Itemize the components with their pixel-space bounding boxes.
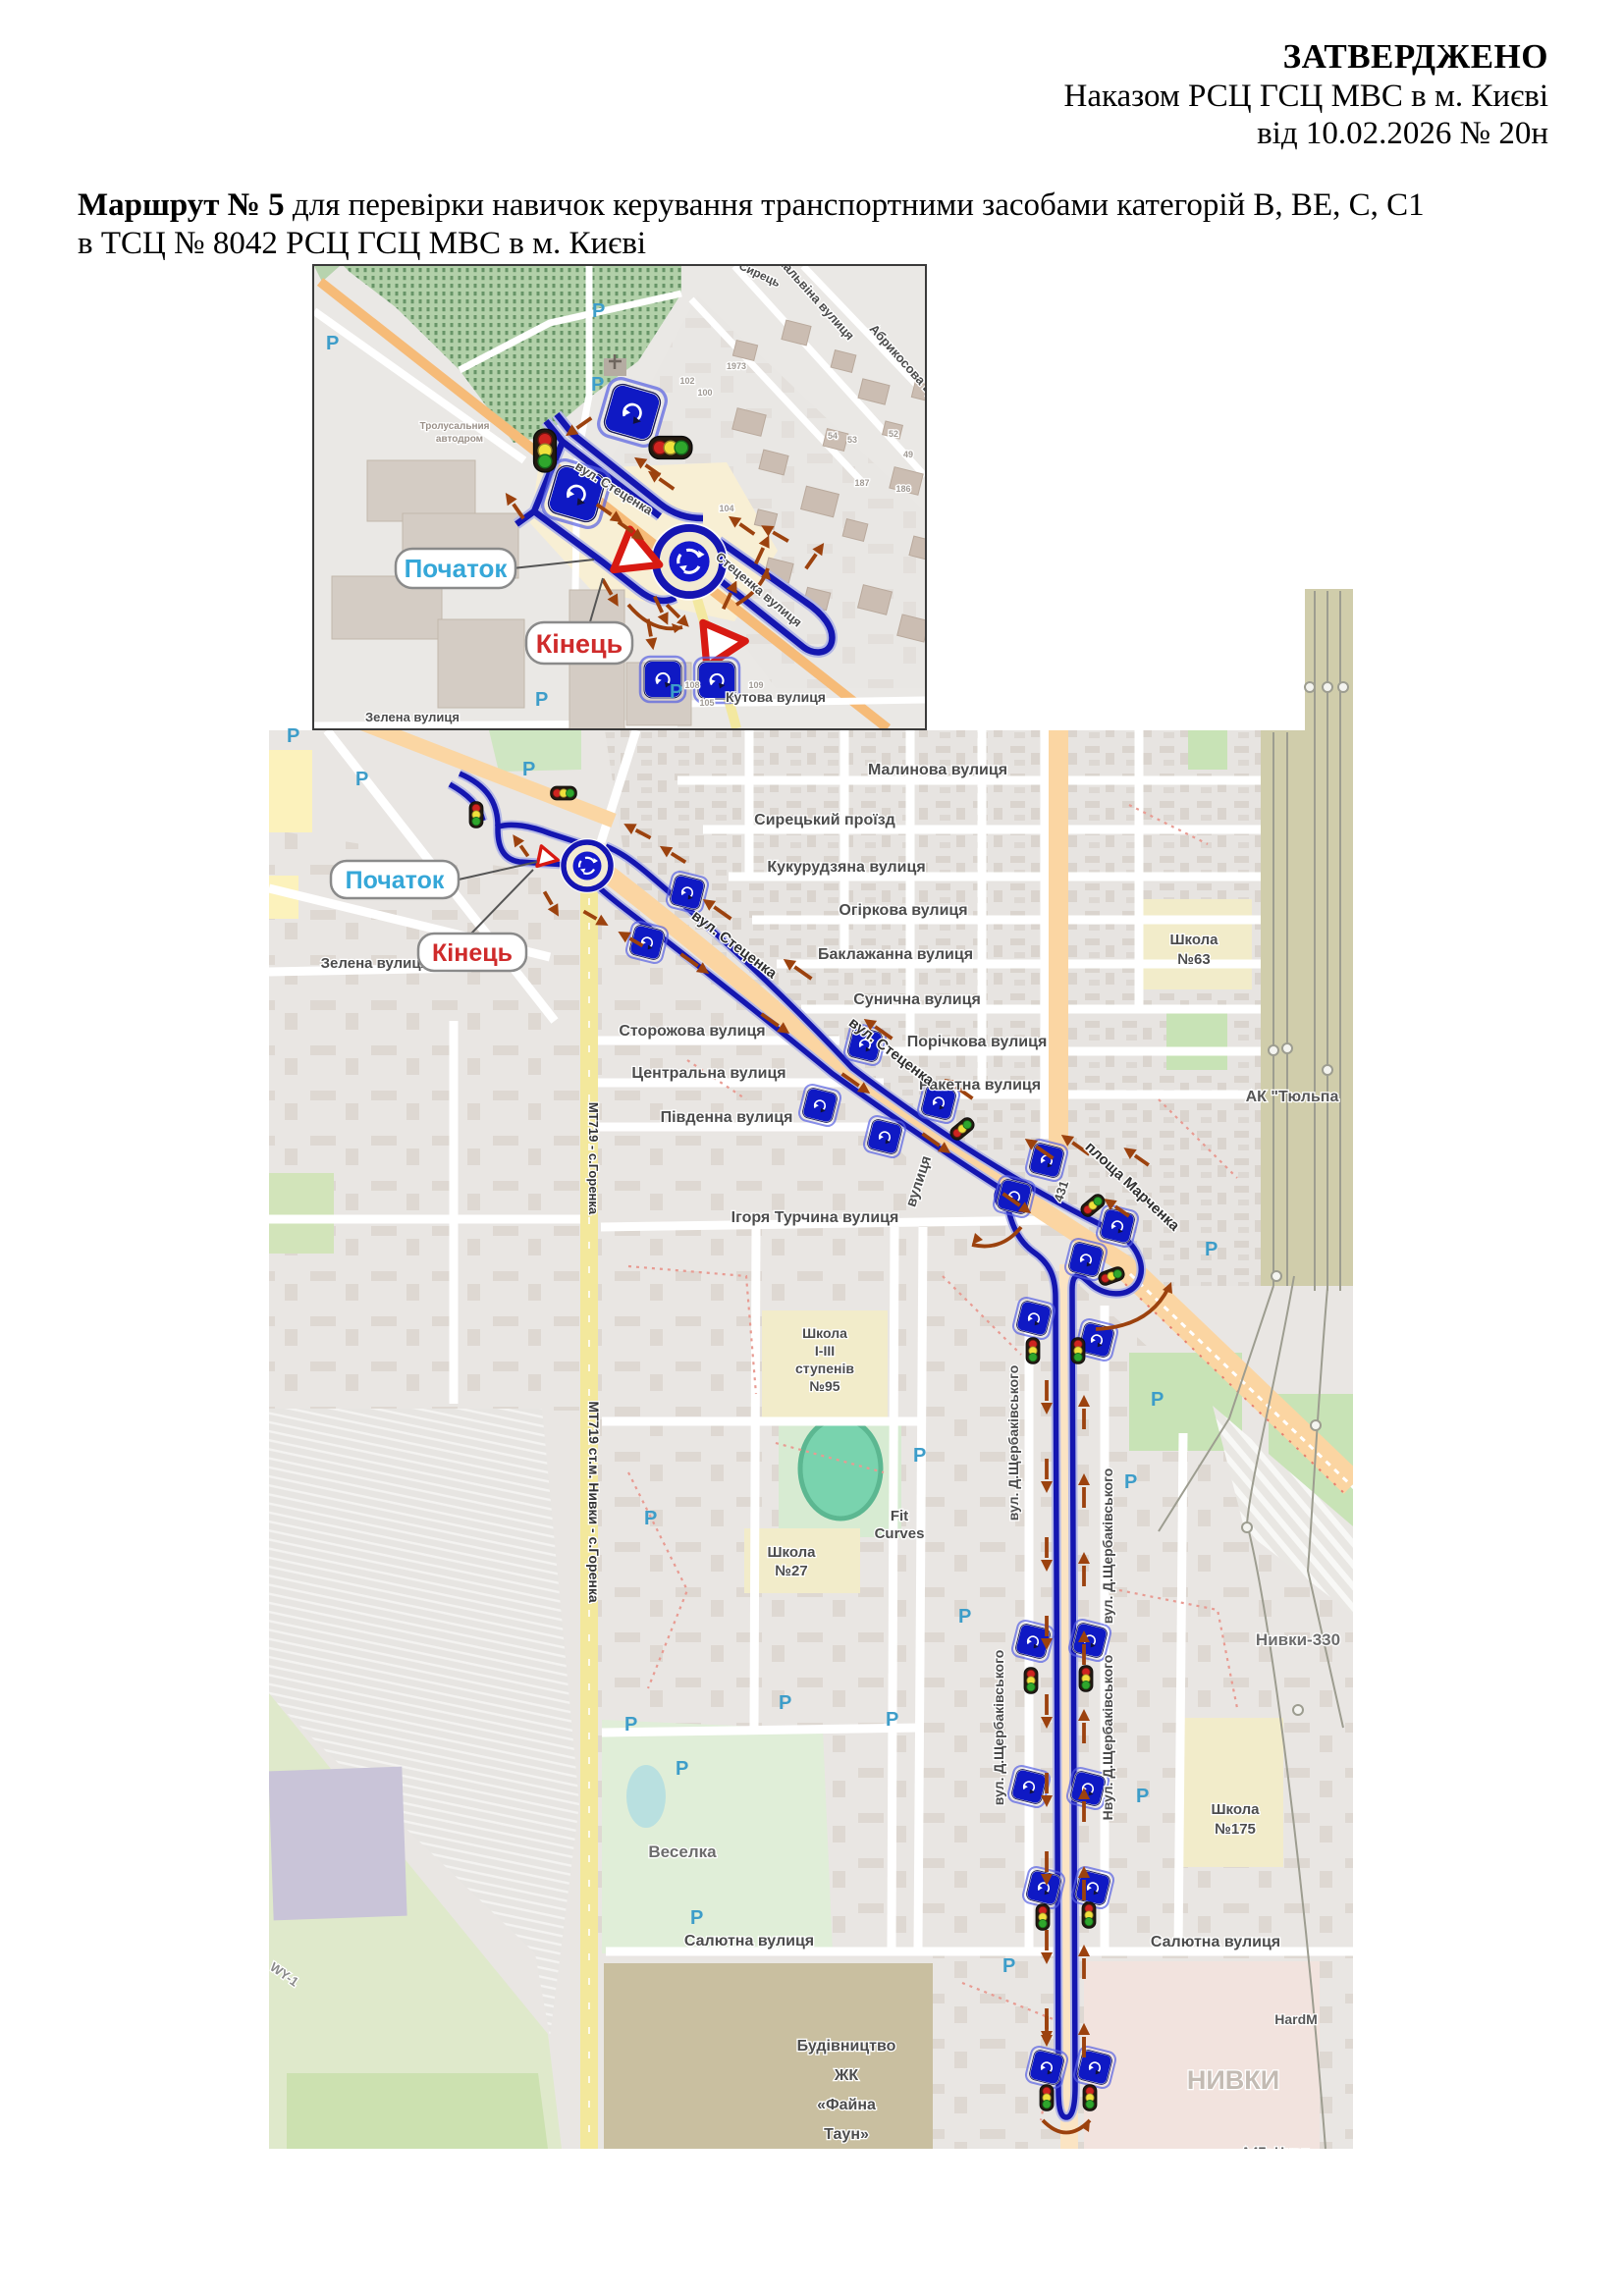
svg-text:P: P xyxy=(287,725,299,747)
svg-text:P: P xyxy=(644,1508,657,1529)
svg-text:P: P xyxy=(1151,1389,1164,1411)
svg-text:52: 52 xyxy=(889,429,898,439)
svg-text:Салютна вулиця: Салютна вулиця xyxy=(684,1933,814,1949)
svg-text:Веселка: Веселка xyxy=(648,1842,717,1861)
svg-text:автодром: автодром xyxy=(436,434,483,445)
svg-text:105: 105 xyxy=(699,698,714,708)
svg-text:Школа: Школа xyxy=(1211,1801,1260,1818)
svg-text:P: P xyxy=(676,1758,688,1780)
svg-text:Fit: Fit xyxy=(891,1508,908,1524)
svg-text:Кукурудзяна вулиця: Кукурудзяна вулиця xyxy=(767,859,925,876)
svg-text:P: P xyxy=(624,1714,637,1735)
svg-text:Ігоря Турчина вулиця: Ігоря Турчина вулиця xyxy=(731,1209,899,1226)
svg-text:1973: 1973 xyxy=(727,361,746,371)
svg-text:Огіркова вулиця: Огіркова вулиця xyxy=(839,902,967,919)
svg-text:P: P xyxy=(1205,1239,1218,1260)
svg-text:104: 104 xyxy=(719,504,733,513)
svg-text:АК "Тюльпа: АК "Тюльпа xyxy=(1246,1089,1339,1105)
svg-text:53: 53 xyxy=(847,435,857,445)
svg-text:Салютна вулиця: Салютна вулиця xyxy=(1151,1934,1280,1950)
svg-text:«Файна: «Файна xyxy=(817,2097,876,2113)
svg-text:Кінець: Кінець xyxy=(432,939,513,967)
svg-text:P: P xyxy=(1124,1471,1137,1493)
svg-text:HardM: HardM xyxy=(1274,2011,1318,2027)
svg-text:Сторожова вулиця: Сторожова вулиця xyxy=(619,1023,765,1040)
svg-text:P: P xyxy=(522,759,535,780)
svg-text:МТ719 - с.Горенка: МТ719 - с.Горенка xyxy=(586,1102,601,1215)
svg-text:P: P xyxy=(591,374,604,396)
svg-text:Нивки-330: Нивки-330 xyxy=(1256,1630,1340,1649)
svg-text:Порічкова вулиця: Порічкова вулиця xyxy=(907,1034,1048,1050)
svg-text:P: P xyxy=(535,689,548,711)
svg-text:вул. Д.Щербаківського: вул. Д.Щербаківського xyxy=(1100,1468,1115,1625)
svg-text:Сирецький проїзд: Сирецький проїзд xyxy=(754,812,895,828)
svg-text:ступенів: ступенів xyxy=(795,1361,854,1376)
svg-text:Початок: Початок xyxy=(346,867,445,894)
svg-text:Зелена вулиця: Зелена вулиця xyxy=(365,710,460,724)
svg-text:Сунична вулиця: Сунична вулиця xyxy=(853,991,981,1008)
svg-text:Школа: Школа xyxy=(767,1544,816,1561)
svg-text:P: P xyxy=(1136,1786,1149,1807)
svg-text:№95: №95 xyxy=(809,1378,839,1394)
svg-text:№63: №63 xyxy=(1177,951,1210,968)
svg-text:А47: Нивк: А47: Нивк xyxy=(1241,2144,1310,2149)
svg-text:109: 109 xyxy=(748,680,763,690)
svg-text:Зелена вулиця: Зелена вулиця xyxy=(321,955,430,972)
svg-text:№175: №175 xyxy=(1215,1821,1256,1838)
svg-text:P: P xyxy=(779,1692,791,1714)
svg-text:54: 54 xyxy=(828,431,838,441)
svg-text:Малинова вулиця: Малинова вулиця xyxy=(868,762,1007,778)
svg-text:P: P xyxy=(690,1907,703,1929)
svg-text:187: 187 xyxy=(854,478,869,488)
svg-text:P: P xyxy=(1002,1955,1015,1977)
svg-text:186: 186 xyxy=(895,484,910,494)
svg-text:108: 108 xyxy=(684,680,699,690)
svg-text:Curves: Curves xyxy=(875,1525,925,1542)
svg-text:P: P xyxy=(670,681,682,703)
svg-text:49: 49 xyxy=(903,450,913,459)
svg-text:Школа: Школа xyxy=(1169,932,1218,948)
svg-text:ЖК: ЖК xyxy=(834,2067,858,2084)
svg-text:№27: №27 xyxy=(775,1563,807,1579)
svg-text:Тролусальния: Тролусальния xyxy=(420,421,490,432)
svg-text:P: P xyxy=(592,300,605,322)
svg-text:P: P xyxy=(958,1606,971,1628)
svg-text:P: P xyxy=(326,333,339,354)
svg-text:102: 102 xyxy=(679,376,694,386)
svg-text:Кінець: Кінець xyxy=(536,629,623,659)
svg-text:Баклажанна вулиця: Баклажанна вулиця xyxy=(818,946,973,963)
svg-text:Центральна вулиця: Центральна вулиця xyxy=(631,1065,785,1082)
svg-text:Південна вулиця: Південна вулиця xyxy=(661,1109,793,1126)
svg-text:P: P xyxy=(913,1445,926,1467)
svg-text:P: P xyxy=(355,769,368,790)
svg-text:вул. Д.Щербаківського: вул. Д.Щербаківського xyxy=(1005,1365,1021,1522)
svg-text:Початок: Початок xyxy=(405,554,509,583)
svg-text:100: 100 xyxy=(697,388,712,398)
svg-text:Таун»: Таун» xyxy=(824,2126,869,2143)
svg-text:Кутова вулиця: Кутова вулиця xyxy=(726,689,826,705)
svg-text:Ракетна вулиця: Ракетна вулиця xyxy=(919,1077,1041,1094)
svg-text:Нвул. Д.Щербаківського: Нвул. Д.Щербаківського xyxy=(1100,1655,1115,1821)
svg-text:Будівництво: Будівництво xyxy=(797,2038,896,2055)
svg-text:І-ІІІ: І-ІІІ xyxy=(815,1343,835,1359)
svg-text:вул. Д.Щербаківського: вул. Д.Щербаківського xyxy=(991,1650,1006,1806)
svg-text:МТ719 ст.м. Нивки - с.Горенка: МТ719 ст.м. Нивки - с.Горенка xyxy=(586,1401,602,1603)
svg-text:НИВКИ: НИВКИ xyxy=(1187,2065,1279,2095)
svg-text:P: P xyxy=(886,1709,898,1731)
svg-text:Школа: Школа xyxy=(802,1325,847,1341)
